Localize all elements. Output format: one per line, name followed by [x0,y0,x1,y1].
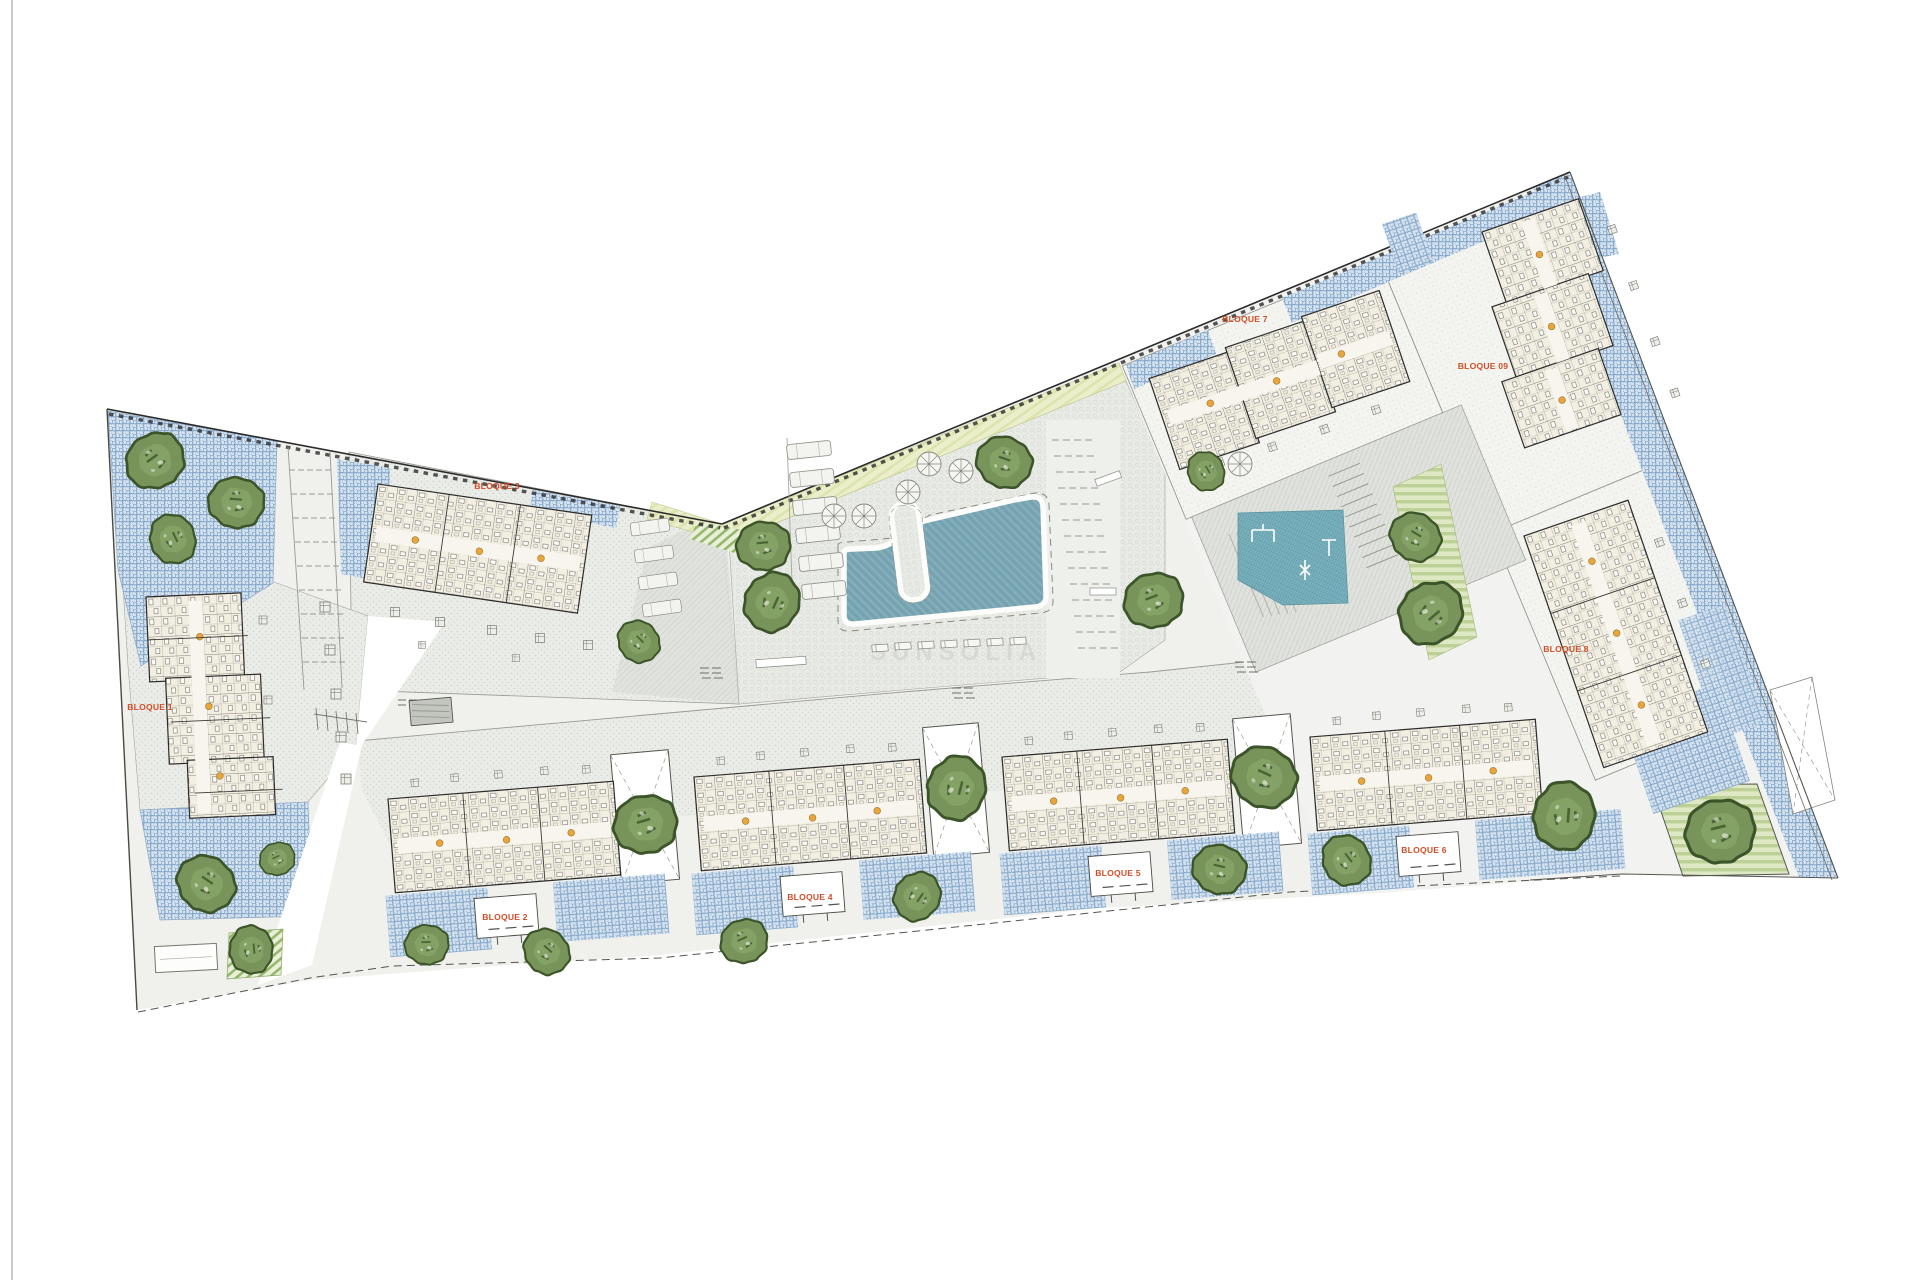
svg-text:BLOQUE 7: BLOQUE 7 [1222,314,1268,324]
svg-text:BLOQUE 8: BLOQUE 8 [1543,644,1589,654]
svg-text:BLOQUE 6: BLOQUE 6 [1401,845,1447,855]
svg-text:BLOQUE 5: BLOQUE 5 [1095,868,1141,878]
svg-text:BLOQUE 2: BLOQUE 2 [482,912,528,922]
svg-text:BLOQUE 09: BLOQUE 09 [1458,361,1509,371]
svg-text:BLOQUE 4: BLOQUE 4 [787,892,833,902]
svg-text:BLOQUE 1: BLOQUE 1 [127,702,173,712]
svg-text:BLOQUE 3: BLOQUE 3 [474,481,520,491]
